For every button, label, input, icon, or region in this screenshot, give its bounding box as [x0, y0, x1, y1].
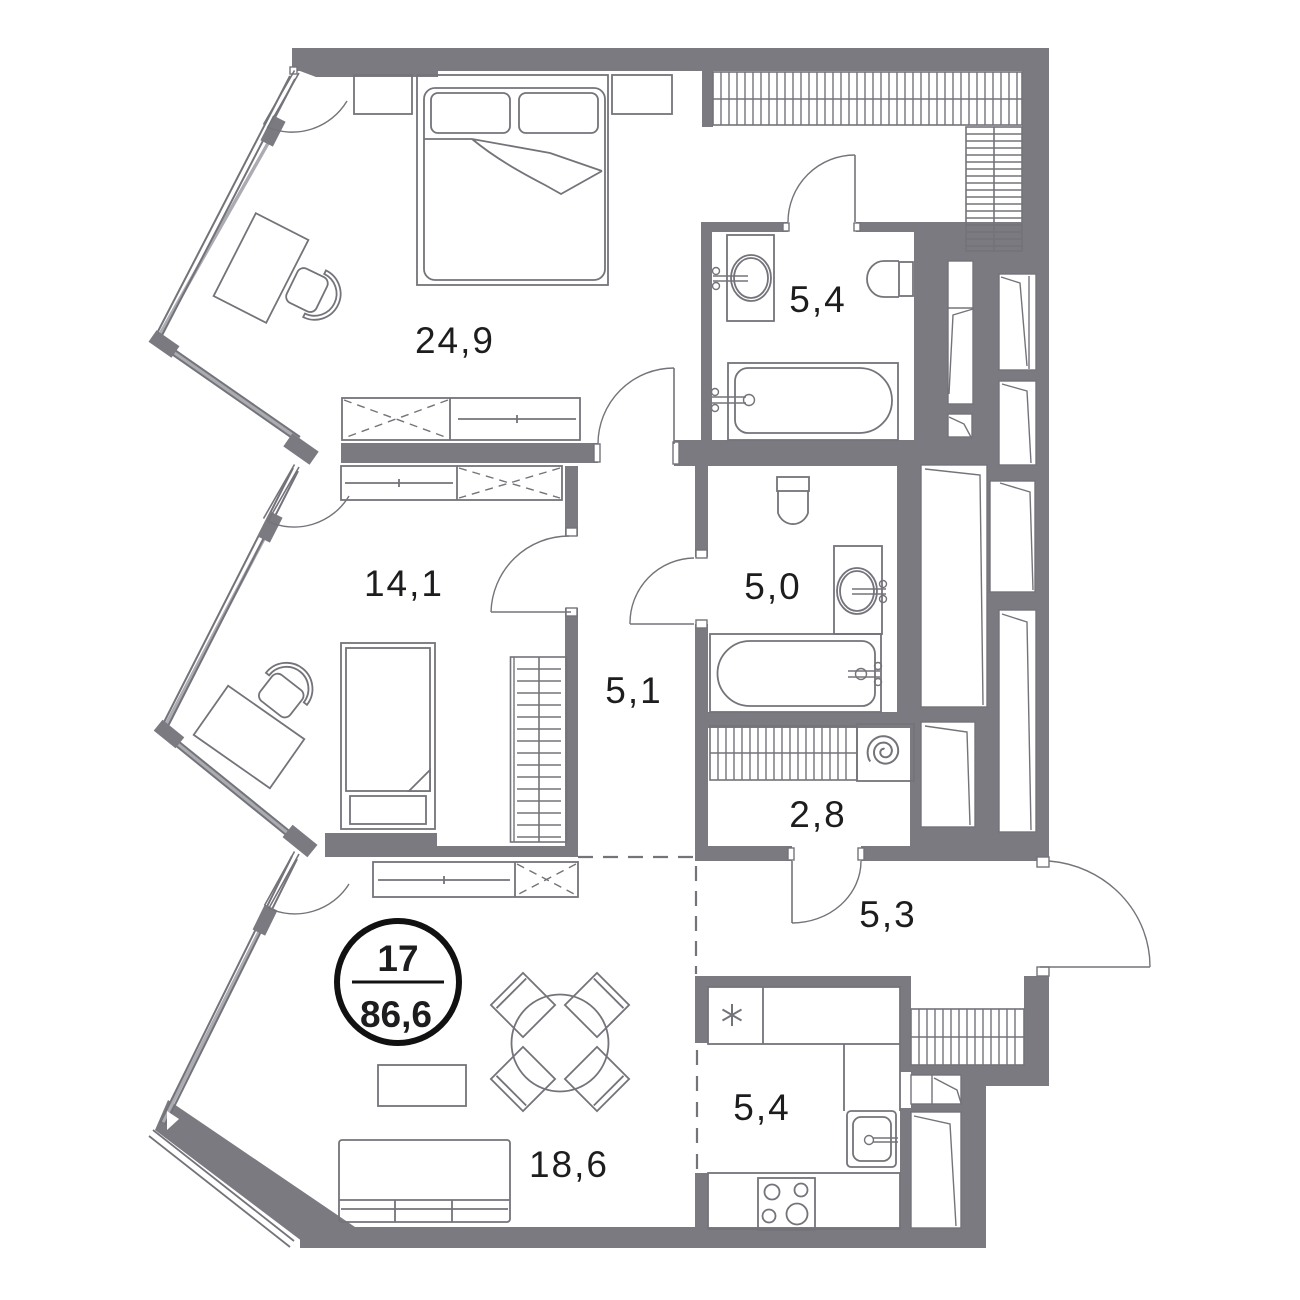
svg-text:2,8: 2,8	[789, 794, 846, 835]
svg-text:86,6: 86,6	[360, 994, 432, 1035]
svg-text:5,0: 5,0	[744, 566, 801, 607]
svg-text:17: 17	[377, 938, 418, 979]
svg-text:5,4: 5,4	[789, 279, 846, 320]
svg-text:18,6: 18,6	[529, 1144, 609, 1185]
svg-text:14,1: 14,1	[364, 563, 444, 604]
svg-text:5,1: 5,1	[605, 670, 662, 711]
svg-text:5,3: 5,3	[859, 894, 916, 935]
svg-text:24,9: 24,9	[415, 320, 495, 361]
svg-text:5,4: 5,4	[733, 1087, 790, 1128]
